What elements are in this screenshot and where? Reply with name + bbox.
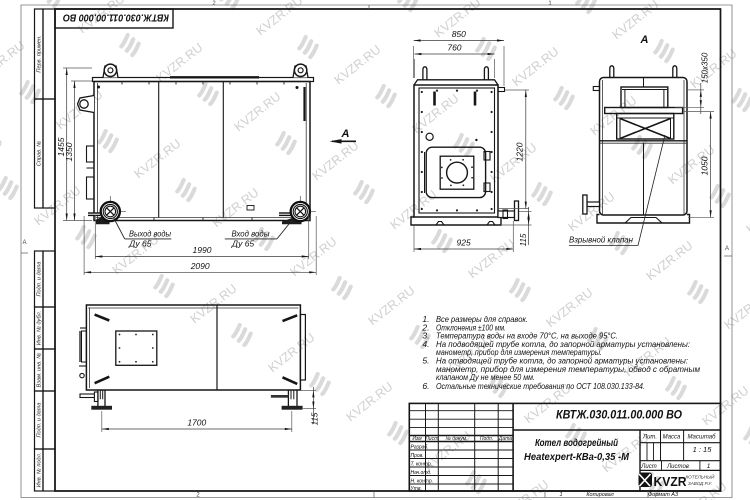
svg-text:Лист: Лист: [640, 464, 656, 470]
svg-text:1: 1: [559, 492, 562, 498]
svg-text:Подп.: Подп.: [480, 436, 493, 442]
svg-text:Подп. и дата: Подп. и дата: [37, 402, 43, 437]
svg-text:1350: 1350: [64, 142, 74, 161]
svg-text:Утв.: Утв.: [411, 486, 422, 492]
svg-text:760: 760: [447, 43, 461, 53]
svg-text:A: A: [640, 34, 649, 46]
svg-text:Разраб.: Разраб.: [411, 445, 429, 451]
svg-text:Подп. и дата: Подп. и дата: [37, 261, 43, 296]
svg-text:КВТЖ.030.011.00.000 ВО: КВТЖ.030.011.00.000 ВО: [63, 12, 169, 24]
svg-text:Взрывной клапан: Взрывной клапан: [569, 235, 633, 245]
svg-text:Дата: Дата: [498, 436, 512, 442]
svg-text:Взам. инв. №: Взам. инв. №: [37, 353, 43, 388]
svg-text:1220: 1220: [515, 142, 525, 161]
svg-text:Пров.: Пров.: [411, 453, 424, 459]
svg-text:Н. контр.: Н. контр.: [411, 479, 434, 485]
svg-text:Т. контр.: Т. контр.: [411, 462, 433, 468]
svg-text:Ду 65: Ду 65: [128, 238, 151, 248]
svg-text:115: 115: [311, 412, 320, 425]
svg-text:A: A: [341, 128, 350, 140]
svg-text:Heatexpert-КВа-0,35 -М: Heatexpert-КВа-0,35 -М: [524, 451, 629, 463]
svg-text:4.: 4.: [422, 339, 429, 349]
svg-text:850: 850: [452, 29, 466, 39]
svg-text:115: 115: [519, 233, 528, 246]
svg-text:Выход воды: Выход воды: [129, 228, 172, 238]
svg-text:150х350: 150х350: [701, 52, 710, 83]
svg-text:2090: 2090: [190, 261, 210, 271]
svg-text:КОТЕЛЬНЫЙ: КОТЕЛЬНЫЙ: [686, 473, 716, 480]
svg-text:Изм: Изм: [412, 436, 422, 442]
svg-text:KVZR: KVZR: [654, 474, 687, 489]
svg-text:Инв. № дубл.: Инв. № дубл.: [37, 311, 43, 345]
svg-text:КВТЖ.030.011.00.000 ВО: КВТЖ.030.011.00.000 ВО: [556, 408, 682, 422]
svg-text:Вход воды: Вход воды: [232, 228, 271, 238]
svg-text:Копировал: Копировал: [586, 492, 613, 498]
svg-text:5.: 5.: [422, 356, 429, 366]
svg-text:А: А: [22, 240, 26, 246]
svg-text:Инв. № подл.: Инв. № подл.: [37, 453, 43, 488]
svg-text:1 : 15: 1 : 15: [693, 445, 713, 454]
svg-text:1050: 1050: [699, 156, 709, 175]
svg-text:925: 925: [457, 238, 471, 248]
svg-text:№ докум.: № докум.: [445, 436, 467, 442]
svg-text:1700: 1700: [187, 418, 206, 428]
svg-text:А: А: [725, 246, 729, 252]
svg-text:Остальные технические требован: Остальные технические требования по ОСТ …: [436, 381, 645, 391]
svg-text:6.: 6.: [422, 381, 429, 391]
svg-text:1990: 1990: [193, 245, 212, 255]
svg-text:Справ. №: Справ. №: [37, 141, 43, 166]
svg-text:Лит.: Лит.: [642, 435, 657, 441]
svg-text:Листов: Листов: [666, 464, 689, 470]
svg-text:Нач.отд.: Нач.отд.: [411, 470, 432, 476]
svg-text:Перв. примен.: Перв. примен.: [37, 35, 43, 72]
svg-text:Котел водогрейный: Котел водогрейный: [535, 437, 618, 449]
svg-text:Масштаб: Масштаб: [687, 435, 716, 441]
svg-text:1: 1: [707, 463, 711, 470]
svg-text:Масса: Масса: [663, 435, 681, 441]
svg-text:Лист: Лист: [424, 436, 438, 442]
svg-text:Формат А3: Формат А3: [648, 492, 679, 498]
svg-text:Ду 65: Ду 65: [231, 238, 254, 248]
svg-text:ЗАВОД Р.У.: ЗАВОД Р.У.: [688, 481, 712, 486]
